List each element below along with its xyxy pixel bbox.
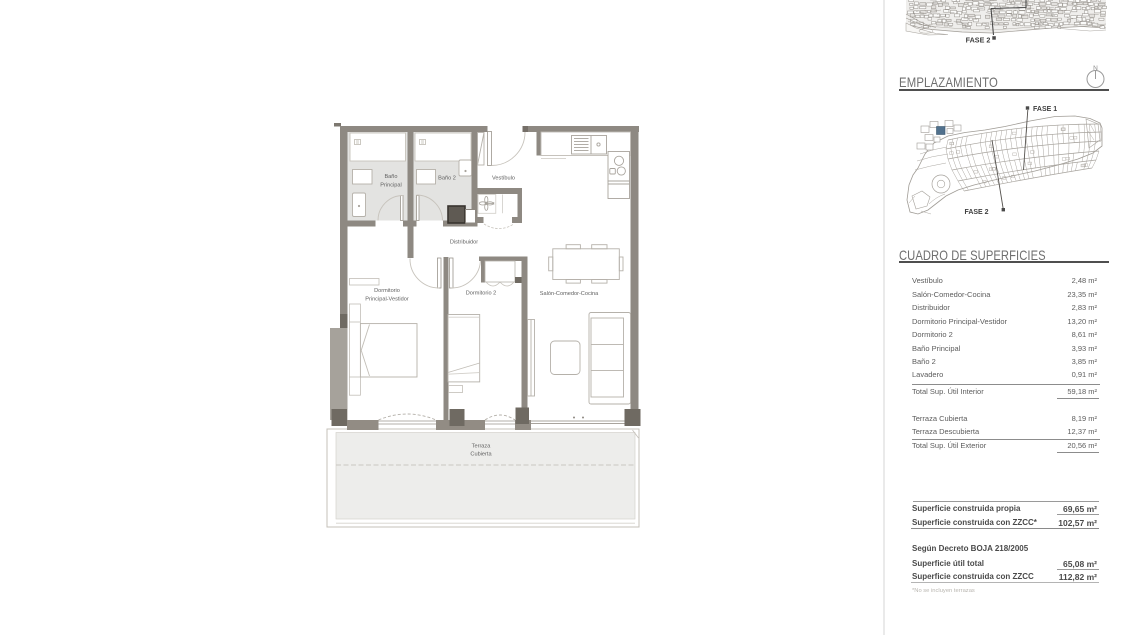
svg-text:Baño 2: Baño 2 [438,176,456,182]
svg-text:Terraza: Terraza [472,444,492,450]
svg-text:FASE 1: FASE 1 [1033,106,1057,113]
svg-text:Cubierta: Cubierta [470,452,492,458]
svg-text:Principal: Principal [380,183,401,189]
svg-text:Salón-Comedor-Cocina: Salón-Comedor-Cocina [540,291,599,297]
svg-text:Dormitorio: Dormitorio [374,288,400,294]
svg-text:Dormitorio 2: Dormitorio 2 [466,291,496,297]
svg-text:Baño: Baño [384,174,397,180]
svg-text:Vestíbulo: Vestíbulo [492,176,515,182]
svg-text:Distribuidor: Distribuidor [450,240,478,246]
svg-text:N: N [1093,65,1098,72]
svg-text:FASE 2: FASE 2 [966,35,991,44]
svg-text:FASE 2: FASE 2 [964,209,988,216]
svg-text:Principal-Vestidor: Principal-Vestidor [365,297,409,303]
